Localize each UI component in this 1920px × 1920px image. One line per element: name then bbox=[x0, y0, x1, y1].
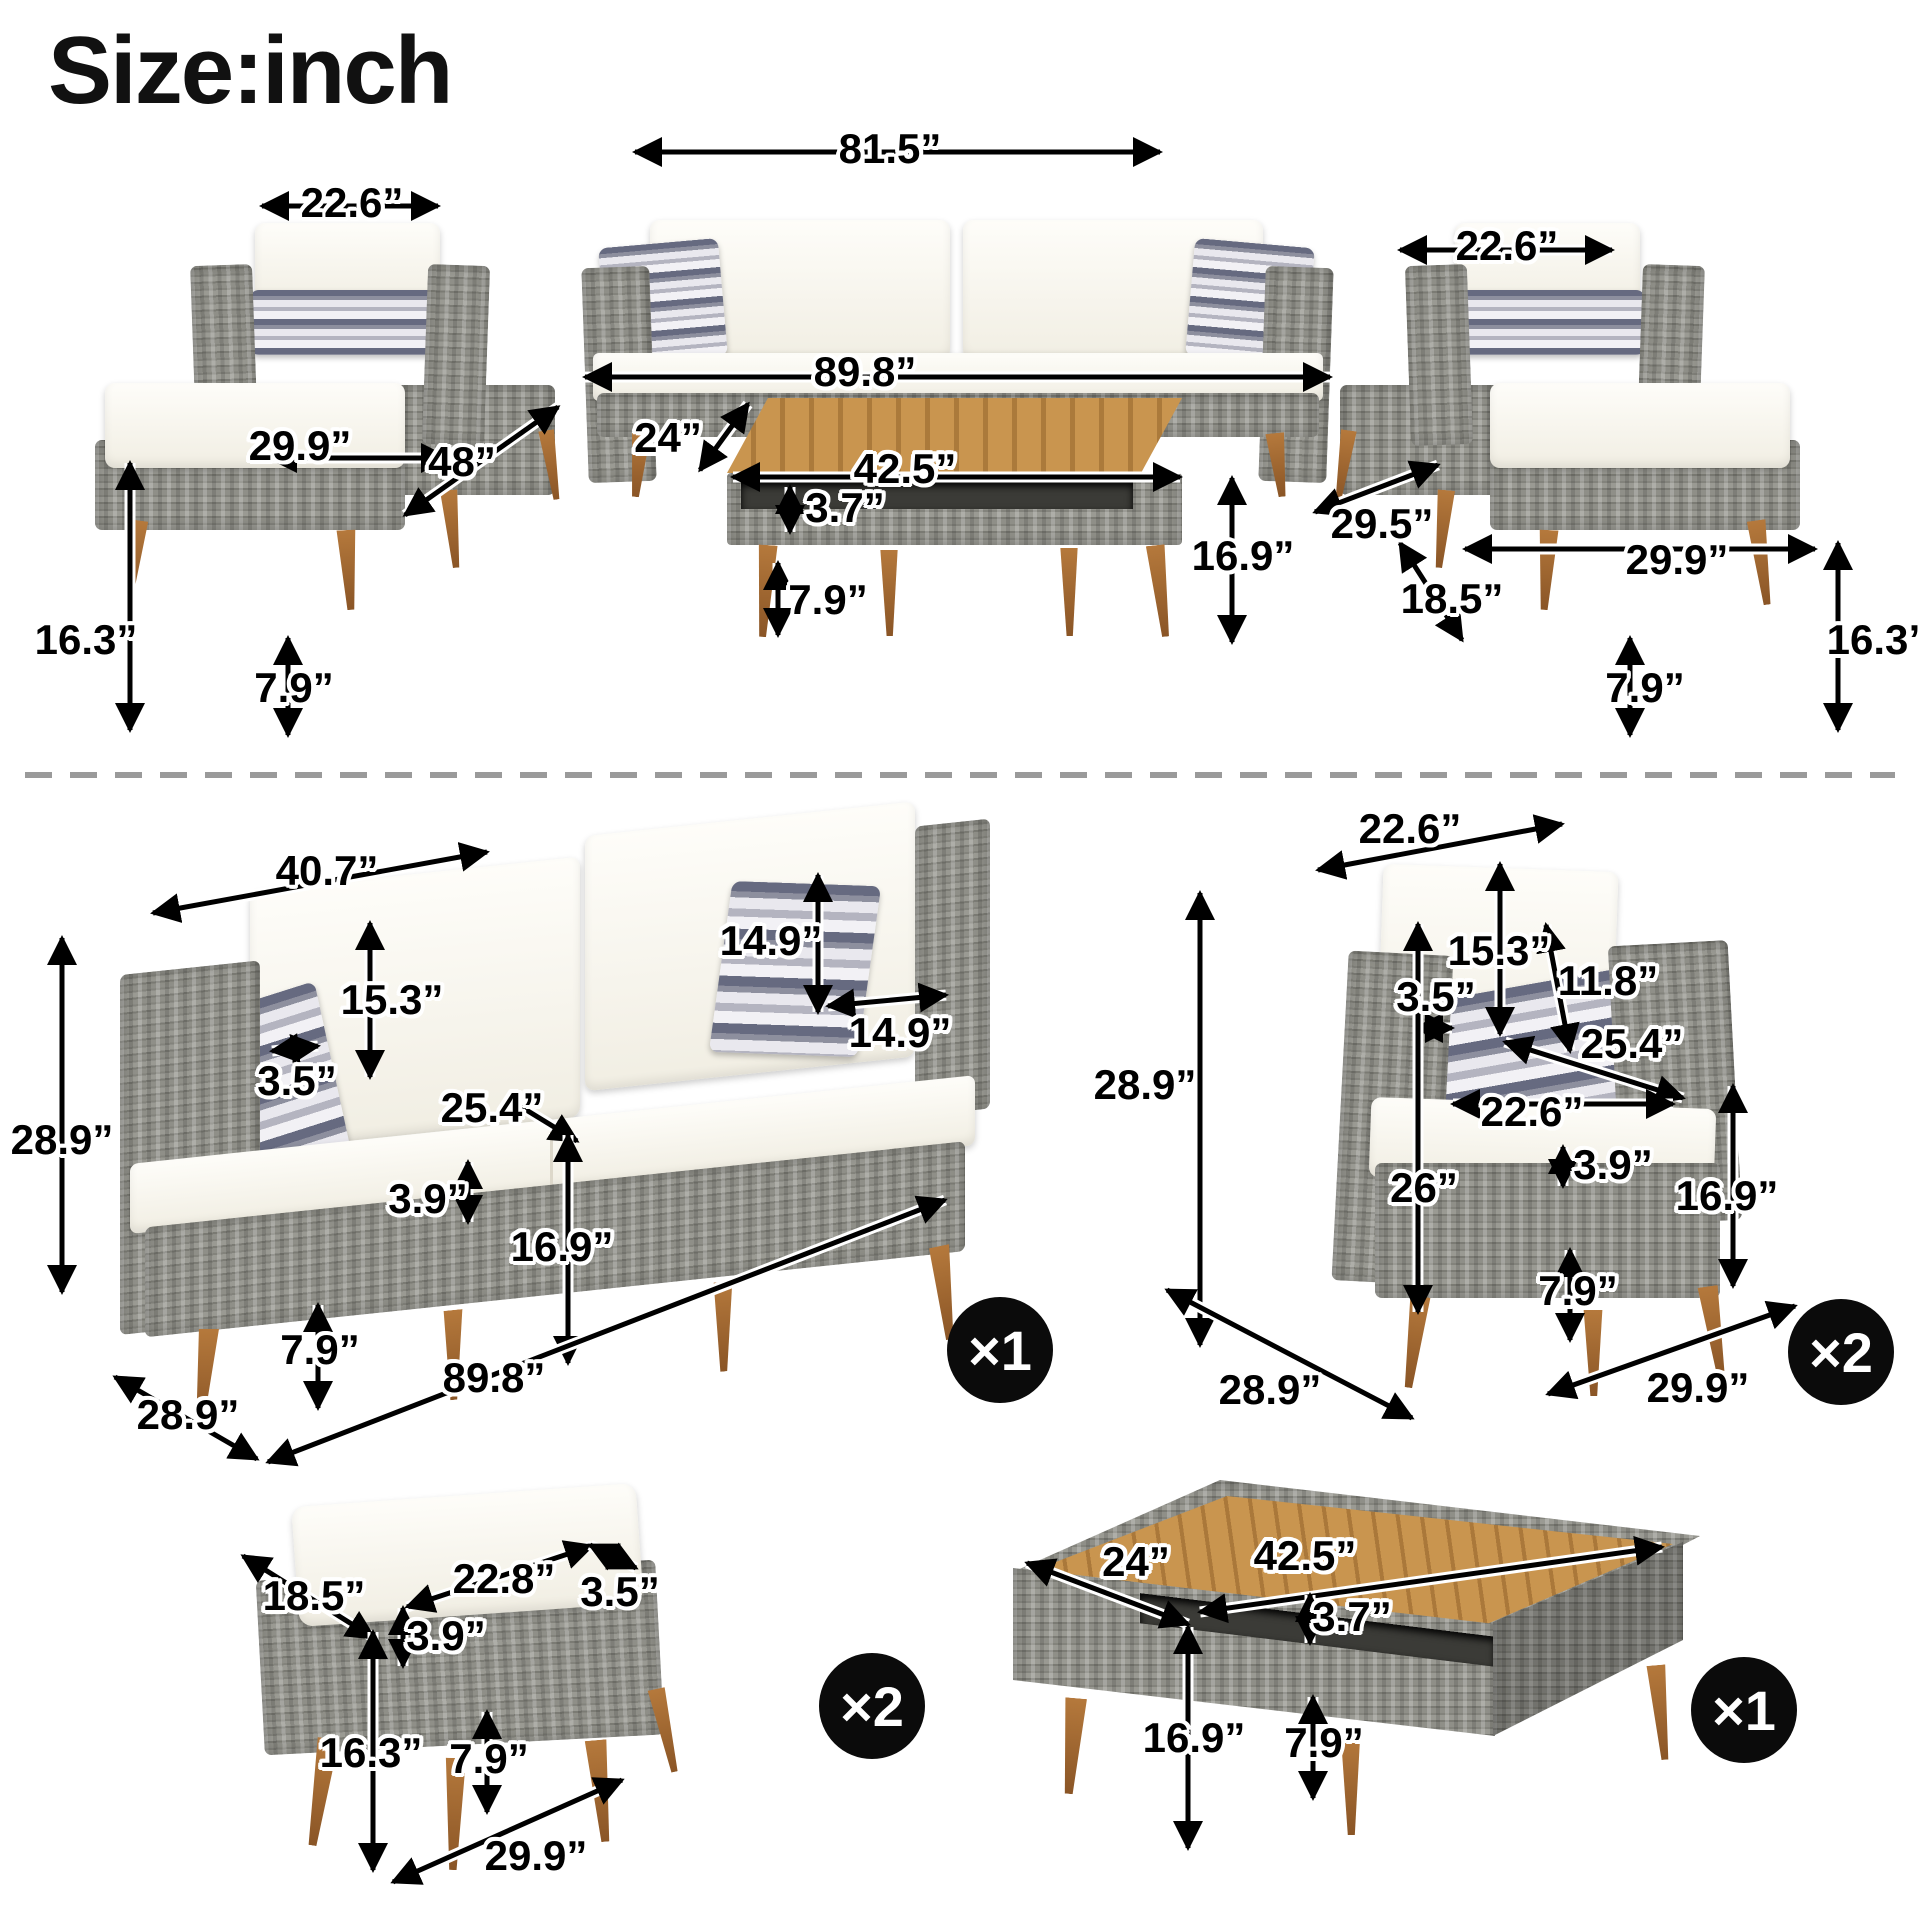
diagram-canvas: Size:inch bbox=[0, 0, 1920, 1920]
dimension-arrows bbox=[0, 0, 1920, 1920]
